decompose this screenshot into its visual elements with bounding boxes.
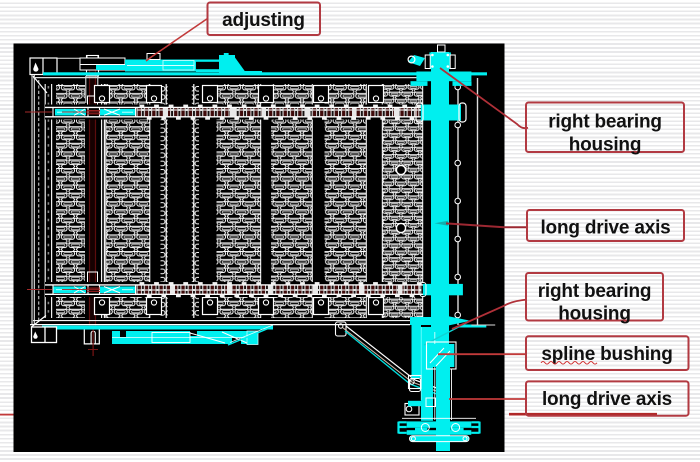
svg-text:long drive axis: long drive axis (540, 218, 670, 239)
svg-text:right bearing: right bearing (548, 112, 662, 133)
svg-text:spline bushing: spline bushing (541, 344, 672, 365)
svg-text:housing: housing (558, 304, 630, 325)
svg-text:right bearing: right bearing (538, 281, 652, 302)
svg-text:adjusting: adjusting (222, 10, 305, 31)
svg-text:housing: housing (569, 135, 641, 156)
svg-text:long drive axis: long drive axis (542, 389, 672, 410)
